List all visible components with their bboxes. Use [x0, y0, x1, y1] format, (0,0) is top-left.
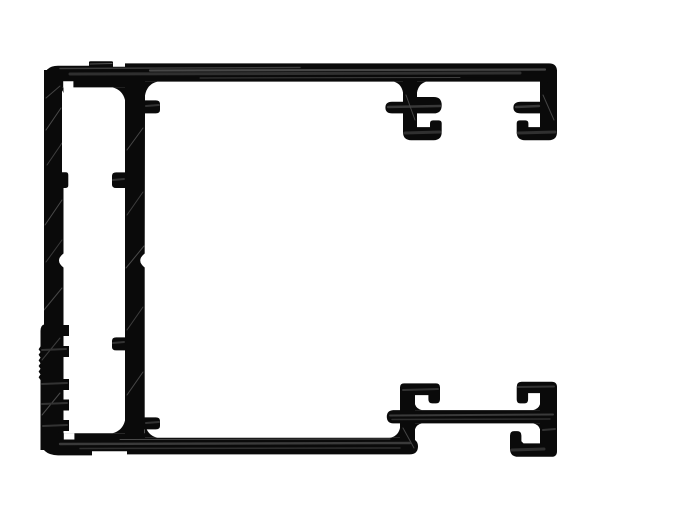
profile-body: [39, 61, 557, 457]
outer-left-wall: [39, 70, 69, 450]
inner-left-wall: [112, 75, 160, 440]
bottom-bar: [387, 410, 557, 423]
extrusion-profile-drawing: [0, 0, 700, 525]
page: { "drawing": { "type": "technical-cross-…: [0, 0, 700, 525]
surface-texture: [42, 64, 555, 451]
